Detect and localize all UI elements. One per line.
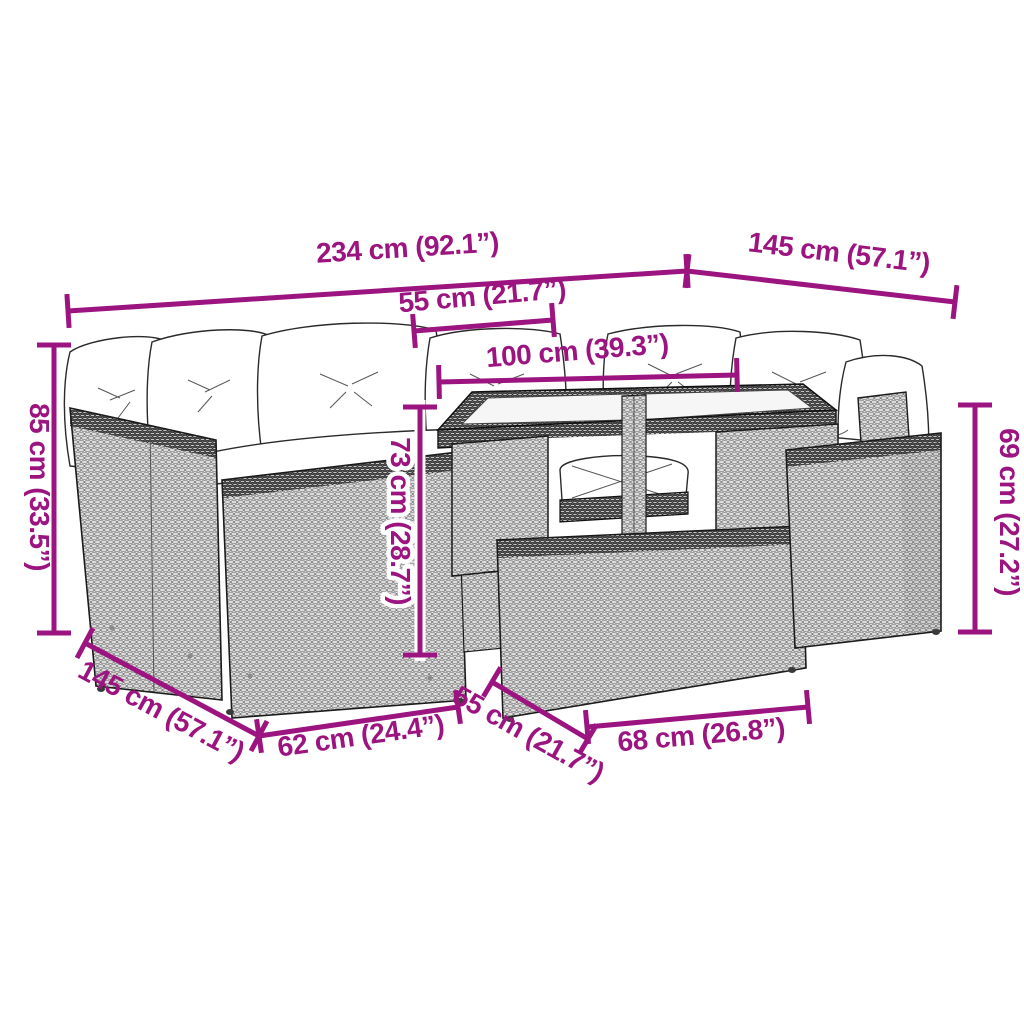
- dim-ottoman-width: 62 cm (24.4”): [259, 707, 458, 763]
- dim-right-section-width-label: 145 cm (57.1”): [746, 226, 931, 278]
- dim-total-width-label: 234 cm (92.1”): [315, 226, 499, 268]
- dim-table-height: 69 cm (27.2”): [975, 405, 1024, 632]
- table-glass-left: [462, 394, 628, 424]
- dim-back-height: 85 cm (33.5”): [24, 345, 55, 633]
- dim-right-section-width: 145 cm (57.1”): [687, 226, 955, 302]
- dim-back-height-label: 85 cm (33.5”): [24, 403, 55, 571]
- front-left-ottoman: [222, 452, 466, 718]
- right-side-unit: [786, 433, 941, 648]
- dim-ottoman-width-label: 62 cm (24.4”): [275, 709, 446, 763]
- dim-center-ottoman-width: 68 cm (26.8”): [587, 707, 808, 757]
- dim-total-width: 234 cm (92.1”): [68, 226, 687, 311]
- dim-seat-width-top-label: 55 cm (21.7”): [397, 273, 567, 319]
- dim-center-ottoman-width-label: 68 cm (26.8”): [616, 712, 786, 758]
- furniture-dimension-drawing: 234 cm (92.1”) 145 cm (57.1”) 55 cm (21.…: [0, 0, 1024, 1024]
- dim-seat-height-label: 73 cm (28.7”): [385, 437, 416, 605]
- dimension-diagram: 234 cm (92.1”) 145 cm (57.1”) 55 cm (21.…: [0, 0, 1024, 1024]
- dim-table-height-label: 69 cm (27.2”): [994, 428, 1024, 596]
- dim-seat-width-top: 55 cm (21.7”): [397, 273, 567, 331]
- front-center-ottoman: [497, 526, 806, 718]
